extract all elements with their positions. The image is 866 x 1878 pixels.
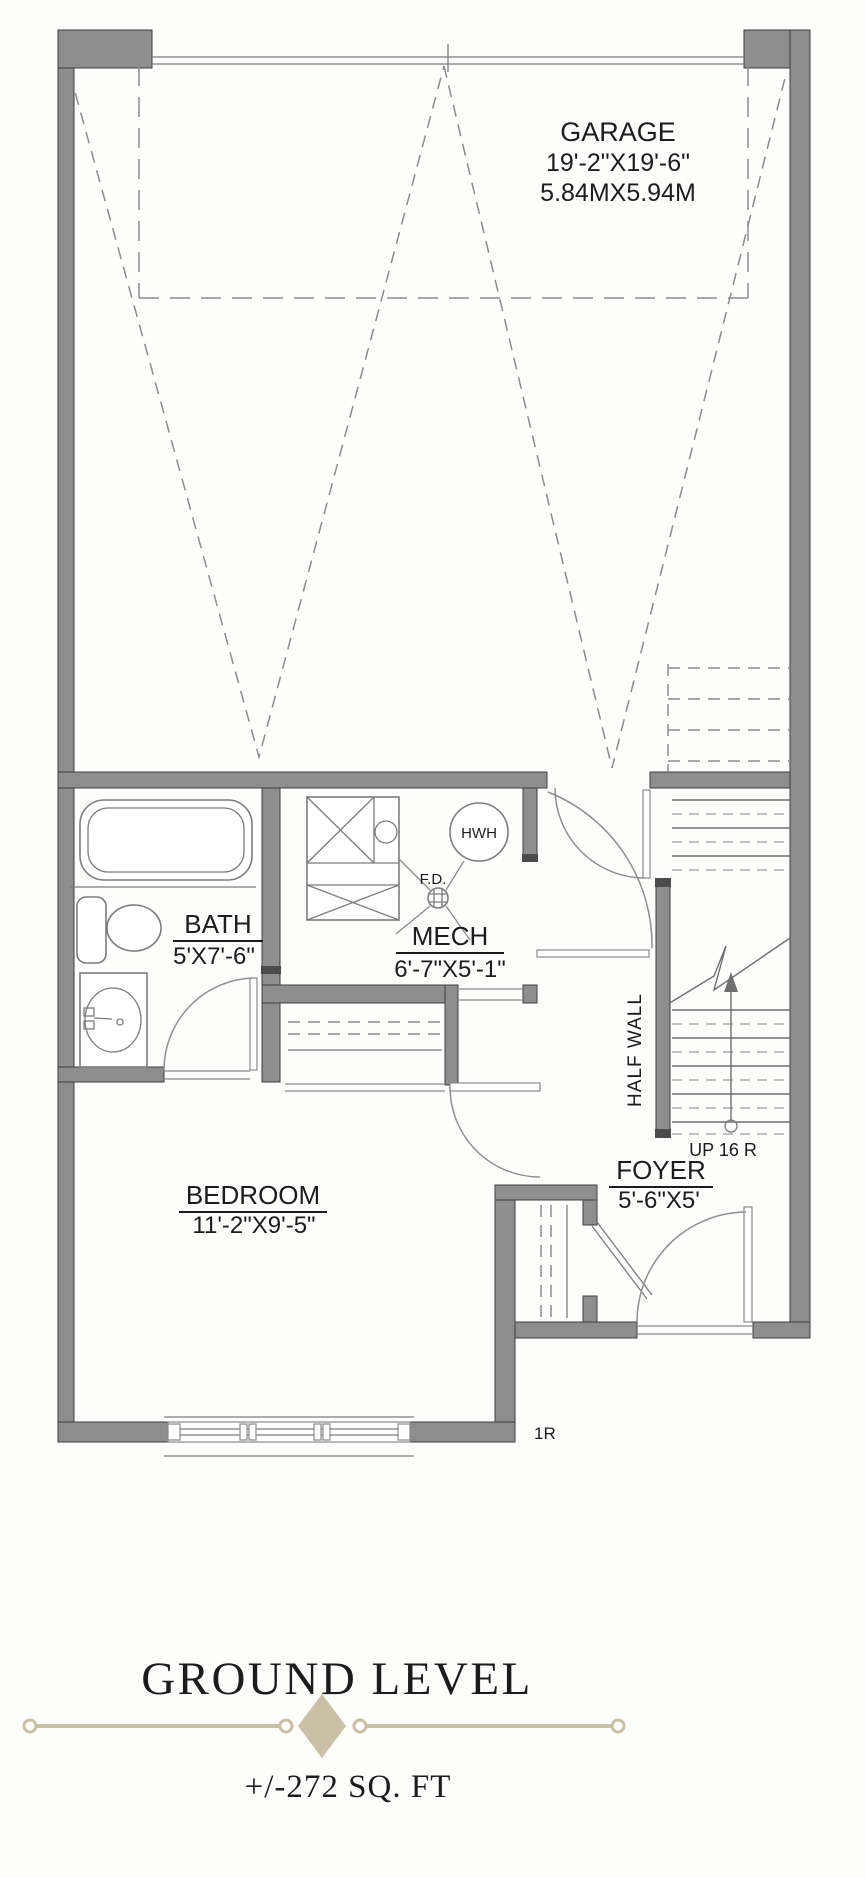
wall-bath-mech-divider: [262, 788, 280, 1082]
window: [164, 1417, 414, 1456]
floor-drain-label: F.D.: [420, 871, 447, 888]
stairs-upper-dashed: [668, 664, 790, 772]
walls: [58, 30, 810, 1442]
wall-garage-bottom-right: [650, 772, 790, 788]
wall-mech-bottom: [262, 985, 450, 1003]
bath-dim: 5'X7'-6": [173, 943, 255, 970]
entry-door-swing: [637, 1212, 746, 1322]
stair-break-line: [668, 938, 790, 1004]
bedroom-label: BEDROOM: [186, 1180, 320, 1210]
wall-closet-hall-divider: [445, 985, 458, 1085]
garage-door: [152, 44, 744, 72]
area-label: +/-272 SQ. FT: [245, 1769, 452, 1805]
one-riser-label: 1R: [534, 1424, 556, 1443]
wall-left: [58, 30, 74, 1442]
fixtures: [70, 797, 508, 1456]
bedroom-door-swing: [450, 1087, 540, 1177]
foyer-dim: 5'-6"X5': [618, 1187, 700, 1214]
wall-right: [790, 30, 810, 1338]
wall-foyer-bottom-left: [515, 1322, 637, 1338]
half-wall: [656, 882, 670, 1136]
bath-door-swing: [164, 978, 253, 1070]
water-heater-label: HWH: [461, 825, 497, 842]
bath-door-leaf: [250, 978, 257, 1070]
mech-label: MECH: [412, 921, 489, 951]
title-block: GROUND LEVEL +/-272 SQ. FT: [24, 1653, 624, 1805]
garage-label: GARAGE: [560, 117, 676, 147]
wall-bedroom-right: [495, 1185, 515, 1442]
bathtub: [70, 800, 256, 887]
decorative-divider: [24, 1694, 624, 1758]
mech-door-leaf: [537, 950, 649, 957]
wall-top-left-stub: [58, 30, 152, 68]
wall-foyer-bottom-right: [753, 1322, 810, 1338]
half-wall-label: HALF WALL: [625, 993, 646, 1107]
mech-door-swing: [548, 792, 652, 948]
wall-mech-right-stub: [523, 788, 537, 860]
bedroom-door-leaf: [450, 1083, 540, 1091]
wall-foyer-closet-stub-bottom: [583, 1296, 597, 1322]
wall-foyer-closet-stub-top: [583, 1200, 597, 1225]
sink-vanity: [80, 973, 147, 1067]
closet-symbols: [288, 1022, 567, 1318]
wall-bath-bottom: [58, 1067, 164, 1082]
garage-dim-m: 5.84MX5.94M: [540, 179, 696, 207]
wall-bedroom-bottom-right: [410, 1422, 515, 1442]
wall-bedroom-bottom-left: [58, 1422, 168, 1442]
wall-foyer-closet-top: [495, 1185, 597, 1200]
page-title: GROUND LEVEL: [141, 1653, 533, 1705]
bath-label: BATH: [184, 909, 251, 939]
toilet: [77, 897, 161, 963]
bedroom-dim: 11'-2"X9'-5": [192, 1212, 315, 1239]
floor-plan-drawing: GARAGE 19'-2"X19'-6" 5.84MX5.94M BATH 5'…: [0, 0, 866, 1878]
mech-dim: 6'-7"X5'-1": [394, 956, 506, 983]
staircase: [668, 800, 790, 1134]
wall-mech-bottom-corner: [523, 985, 537, 1003]
washer-dryer: [307, 797, 399, 920]
landing-door-leaf: [643, 790, 650, 878]
garage-dim-ft: 19'-2"X19'-6": [546, 149, 690, 177]
entry-door-leaf: [744, 1207, 752, 1322]
wall-garage-bottom: [58, 772, 547, 788]
stairs-up-label: UP 16 R: [689, 1140, 757, 1160]
floor-plan-page: GARAGE 19'-2"X19'-6" 5.84MX5.94M BATH 5'…: [0, 0, 866, 1878]
